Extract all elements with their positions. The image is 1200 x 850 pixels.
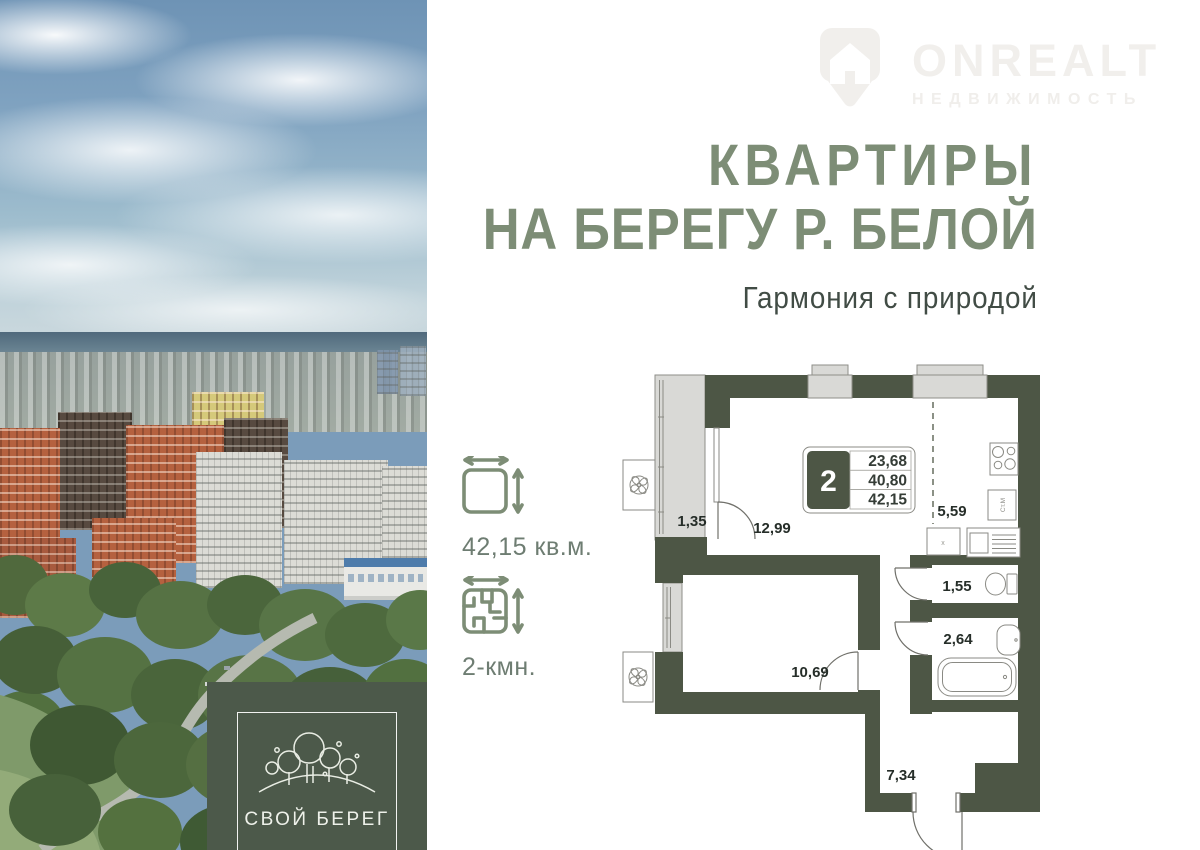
trees-icon	[252, 722, 382, 794]
badge-rooms-count: 2	[820, 465, 837, 498]
badge-area-1: 23,68	[868, 453, 907, 470]
bath-sink-icon	[997, 625, 1020, 655]
cabinet-label: x	[941, 540, 945, 547]
distant-tower	[377, 350, 398, 394]
kitchen-counter: x	[927, 528, 1020, 557]
headline-line2: НА БЕРЕГУ Р. БЕЛОЙ	[483, 198, 1038, 262]
area-icon	[462, 456, 534, 518]
promo-sheet: СВОЙ БЕРЕГ ONREALT НЕДВИЖИМОСТЬ КВАРТИРЫ…	[0, 0, 1200, 850]
riverbank-city-photo: СВОЙ БЕРЕГ	[0, 0, 427, 850]
developer-name: СВОЙ БЕРЕГ	[207, 809, 427, 831]
watermark-tagline: НЕДВИЖИМОСТЬ	[912, 91, 1161, 109]
svg-text:Ст.М: Ст.М	[1000, 498, 1007, 512]
wc-door	[895, 568, 927, 600]
label-bathroom: 2,64	[943, 631, 973, 648]
balcony-window	[714, 428, 719, 502]
balcony-door	[718, 502, 755, 539]
washing-machine: Ст.М	[988, 490, 1016, 520]
house-pin-icon	[818, 26, 882, 110]
badge-area-3: 42,15	[868, 492, 907, 509]
label-kitchen: 5,59	[937, 503, 966, 520]
label-living: 12,99	[753, 520, 791, 537]
area-value: 42,15 кв.м.	[462, 533, 592, 562]
stove-icon	[990, 443, 1018, 475]
distant-tower	[400, 346, 426, 396]
rooms-value: 2-кмн.	[462, 653, 536, 682]
bathtub-icon	[938, 658, 1016, 696]
walls	[655, 375, 1040, 812]
toilet-icon	[986, 573, 1018, 595]
bathroom-door	[895, 622, 928, 655]
badge-area-2: 40,80	[868, 472, 907, 489]
car	[224, 666, 230, 670]
fan-unit	[623, 460, 655, 510]
label-balcony: 1,35	[677, 513, 706, 530]
label-wc: 1,55	[942, 578, 971, 595]
label-hallway: 7,34	[886, 767, 916, 784]
fan-unit	[623, 652, 653, 702]
headline-line1: КВАРТИРЫ	[483, 134, 1038, 198]
plan-badge: 2 23,68 40,80 42,15	[803, 447, 915, 513]
watermark-brand: ONREALT	[912, 38, 1161, 83]
spec-area: 42,15 кв.м.	[462, 456, 592, 562]
clouds	[0, 0, 427, 345]
developer-logo: СВОЙ БЕРЕГ	[207, 682, 427, 850]
entrance-door	[912, 793, 962, 850]
floor-plan: Ст.М x	[618, 362, 1042, 850]
rooms-icon	[462, 576, 534, 638]
label-bedroom: 10,69	[791, 664, 829, 681]
spec-rooms: 2-кмн.	[462, 576, 536, 682]
headline-subtitle: Гармония с природой	[472, 280, 1038, 316]
headline: КВАРТИРЫ НА БЕРЕГУ Р. БЕЛОЙ Гармония с п…	[483, 134, 1038, 316]
onrealt-watermark: ONREALT НЕДВИЖИМОСТЬ	[818, 26, 882, 115]
